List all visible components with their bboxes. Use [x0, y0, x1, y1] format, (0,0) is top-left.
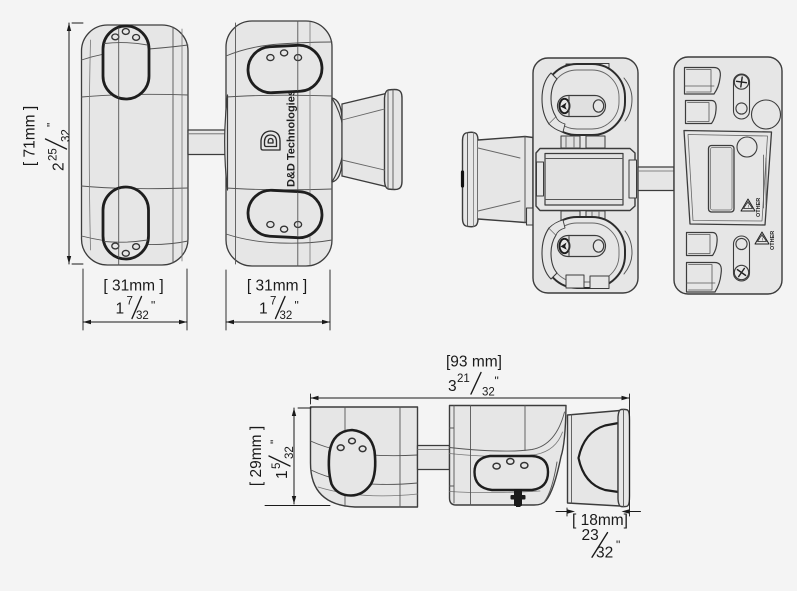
svg-text:": " [45, 123, 59, 127]
svg-text:[ 31mm ]: [ 31mm ] [103, 278, 163, 295]
svg-text:[ 31mm ]: [ 31mm ] [247, 278, 307, 295]
svg-text:7: 7 [761, 237, 764, 243]
svg-text:OTHER: OTHER [756, 198, 762, 217]
svg-text:25: 25 [48, 148, 60, 161]
svg-text:D&D Technologies: D&D Technologies [286, 90, 298, 187]
svg-text:": " [616, 538, 620, 552]
svg-text:5: 5 [271, 463, 283, 469]
svg-text:21: 21 [457, 373, 470, 385]
svg-text:[ 18mm]: [ 18mm] [572, 512, 628, 529]
svg-text:32: 32 [596, 545, 613, 562]
svg-text:[ 71mm ]: [ 71mm ] [22, 106, 39, 166]
svg-text:32: 32 [280, 310, 293, 322]
svg-text:1: 1 [274, 470, 291, 479]
svg-text:1: 1 [259, 301, 268, 318]
svg-text:32: 32 [482, 387, 495, 399]
svg-text:OTHER: OTHER [770, 231, 776, 250]
svg-text:32: 32 [284, 446, 296, 459]
svg-text:32: 32 [136, 310, 149, 322]
svg-text:7: 7 [747, 204, 750, 210]
svg-text:7: 7 [127, 296, 133, 308]
svg-text:32: 32 [61, 129, 73, 142]
svg-text:": " [295, 299, 299, 313]
svg-text:": " [495, 374, 499, 388]
svg-text:1: 1 [116, 301, 125, 318]
svg-text:[93 mm]: [93 mm] [446, 354, 502, 371]
svg-text:2: 2 [51, 162, 68, 171]
svg-text:3: 3 [448, 378, 457, 395]
svg-text:7: 7 [270, 296, 276, 308]
svg-text:": " [268, 440, 282, 444]
svg-text:": " [151, 299, 155, 313]
svg-text:[ 29mm ]: [ 29mm ] [248, 426, 265, 486]
svg-text:23: 23 [582, 527, 599, 544]
